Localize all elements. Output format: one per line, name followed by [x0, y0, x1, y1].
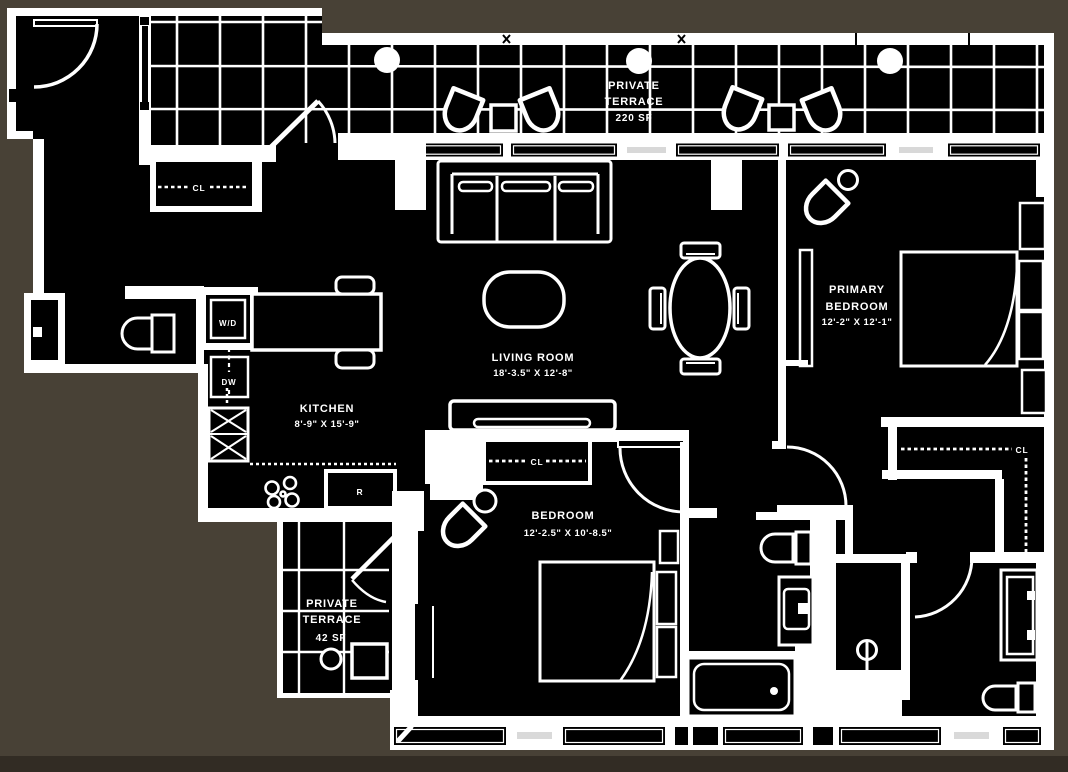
svg-text:R: R — [357, 487, 364, 497]
svg-text:W/D: W/D — [219, 319, 237, 328]
svg-text:DW: DW — [222, 378, 237, 387]
svg-text:18'-3.5" X 12'-8": 18'-3.5" X 12'-8" — [493, 368, 573, 379]
svg-text:CL: CL — [193, 183, 206, 193]
svg-text:LIVING ROOM: LIVING ROOM — [492, 352, 575, 364]
svg-text:220 SF: 220 SF — [615, 113, 652, 124]
svg-text:TERRACE: TERRACE — [303, 614, 362, 626]
svg-text:BEDROOM: BEDROOM — [825, 301, 888, 313]
svg-text:CL: CL — [1016, 445, 1029, 455]
svg-text:12'-2.5" X 10'-8.5": 12'-2.5" X 10'-8.5" — [524, 528, 613, 539]
svg-text:CL: CL — [531, 457, 544, 467]
svg-text:12'-2" X 12'-1": 12'-2" X 12'-1" — [822, 317, 893, 328]
svg-text:TERRACE: TERRACE — [605, 96, 664, 108]
svg-text:8'-9" X 15'-9": 8'-9" X 15'-9" — [295, 419, 360, 430]
svg-text:PRIVATE: PRIVATE — [306, 598, 358, 610]
svg-text:42 SF: 42 SF — [316, 633, 347, 644]
svg-text:KITCHEN: KITCHEN — [300, 403, 355, 415]
svg-text:BEDROOM: BEDROOM — [531, 510, 594, 522]
svg-text:PRIMARY: PRIMARY — [829, 284, 885, 296]
svg-text:PRIVATE: PRIVATE — [608, 80, 660, 92]
